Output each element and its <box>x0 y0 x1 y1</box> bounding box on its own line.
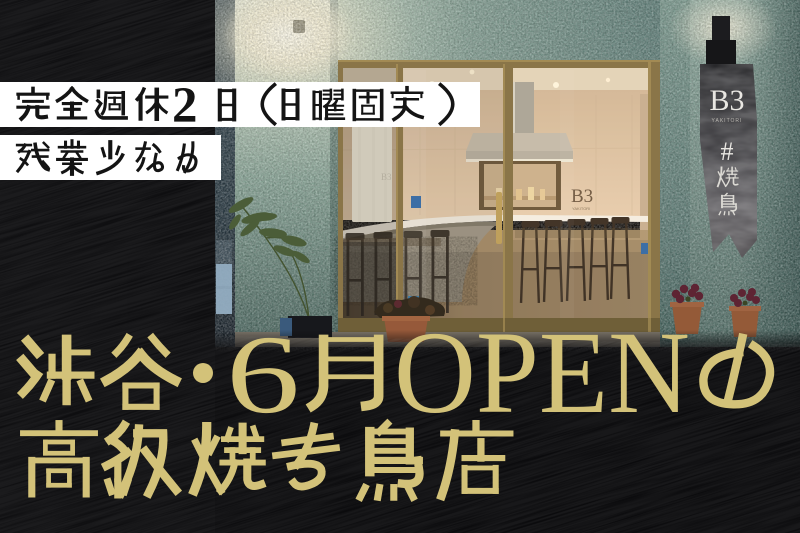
svg-text:#: # <box>721 137 734 166</box>
svg-text:B3: B3 <box>709 84 744 117</box>
svg-text:6: 6 <box>226 313 300 437</box>
svg-text:2: 2 <box>172 78 198 134</box>
svg-text:YAKITORI: YAKITORI <box>712 118 743 124</box>
svg-text:OPEN: OPEN <box>394 307 690 438</box>
